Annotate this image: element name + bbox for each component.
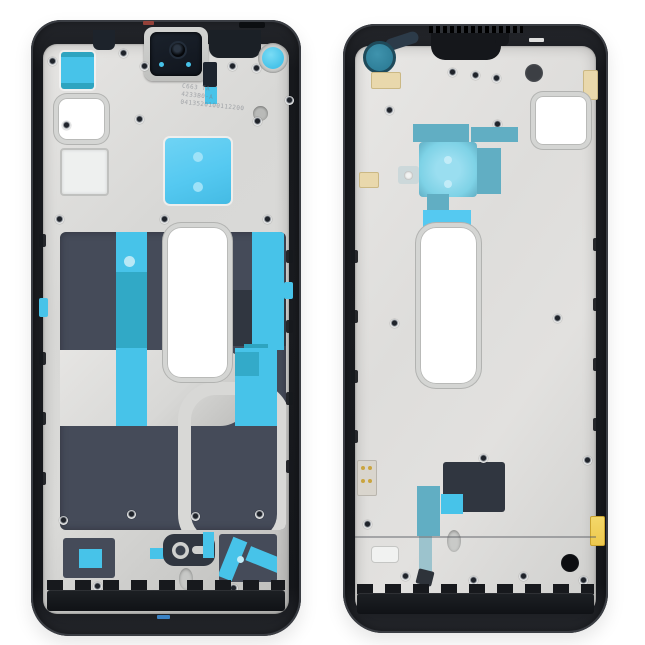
screw-hole — [285, 96, 294, 105]
speaker-patch — [63, 538, 115, 578]
top-right-cutout — [535, 96, 587, 145]
edge-tab — [39, 352, 46, 365]
adhesive-dot-2 — [193, 182, 203, 192]
camera-dot-left — [159, 62, 164, 67]
adhesive-bar-right — [471, 127, 518, 142]
screw-hole — [553, 314, 562, 323]
contact-dot — [361, 466, 365, 470]
screw-hole — [135, 115, 144, 124]
edge-adhesive-left — [39, 298, 48, 317]
screw-hole — [385, 106, 394, 115]
bottom-blue-dash — [157, 615, 170, 619]
front-camera-ring — [258, 43, 288, 73]
camera-lens — [169, 41, 187, 59]
adhesive-arm-right — [477, 148, 501, 194]
edge-tab — [593, 298, 600, 311]
right-midframe — [343, 24, 608, 633]
top-speaker-slot — [239, 22, 265, 28]
top-white-dash — [529, 38, 544, 42]
gold-contact-right — [590, 516, 605, 546]
edge-tab — [351, 370, 358, 383]
screw-hole — [253, 117, 262, 126]
screw-hole — [59, 516, 68, 525]
screw-hole — [479, 454, 488, 463]
camera-dot-right — [186, 62, 191, 67]
front-camera-sticker — [262, 47, 284, 69]
camera-module — [150, 32, 202, 76]
bracket-seam — [355, 536, 596, 538]
edge-tab — [593, 358, 600, 371]
edge-tab — [286, 320, 293, 333]
edge-tab — [39, 412, 46, 425]
edge-tab — [351, 310, 358, 323]
housing-serration — [429, 26, 523, 33]
product-photo-two-phone-midframes: C663 TA 4233B0-A 0413520100112200 — [0, 0, 645, 645]
adhesive-tab-left — [398, 166, 419, 184]
speaker-adhesive — [79, 549, 102, 568]
top-left-cutout — [58, 98, 105, 140]
screw-hole — [62, 121, 71, 130]
adhesive-bar-left — [413, 124, 469, 142]
edge-tab — [39, 234, 46, 247]
screw-hole — [583, 456, 592, 465]
lcd-adhesive-square — [165, 138, 231, 204]
bottom-dark-patch — [219, 534, 277, 582]
contact-dot — [368, 479, 372, 483]
edge-tab — [286, 250, 293, 263]
edge-tab — [286, 460, 293, 473]
bottom-adhesive-vertical — [203, 532, 214, 558]
adhesive-dot-1 — [444, 156, 452, 164]
screw-hole — [228, 62, 237, 71]
adhesive-strip-right-upper — [252, 232, 284, 350]
screw-hole — [252, 64, 261, 73]
screw-hole — [160, 215, 169, 224]
screw-hole — [48, 57, 57, 66]
contact-dot — [361, 479, 365, 483]
adhesive-strip-right-lower-overlay — [235, 352, 259, 376]
oval-hole — [447, 530, 461, 552]
edge-tab — [39, 472, 46, 485]
screw-hole — [263, 215, 272, 224]
raised-square — [60, 148, 109, 196]
bottom-comb-bar — [357, 593, 594, 614]
screw-hole — [401, 572, 410, 581]
adhesive-square — [419, 142, 477, 197]
display-flex-cutout — [420, 227, 477, 384]
earpiece-sticker — [61, 52, 94, 89]
plate-hole-dark — [525, 64, 543, 82]
screw-hole — [119, 49, 128, 58]
sensor-housing — [209, 30, 261, 58]
edge-tab — [351, 250, 358, 263]
edge-tab — [593, 418, 600, 431]
strip-hole — [124, 256, 135, 267]
screw-hole — [255, 510, 264, 519]
patch-dot — [237, 556, 244, 563]
red-qc-mark — [143, 21, 154, 25]
screw-hole — [390, 319, 399, 328]
screw-hole — [140, 62, 149, 71]
bottom-comb-bar — [47, 590, 285, 611]
screw-hole — [127, 510, 136, 519]
screw-hole — [471, 71, 480, 80]
screw-hole — [363, 520, 372, 529]
tab-hole — [404, 171, 413, 180]
bottom-comb-teeth — [47, 580, 285, 590]
adhesive-dot-2 — [444, 180, 452, 188]
proximity-tab — [203, 62, 217, 87]
adhesive-strip-lower — [417, 486, 440, 536]
edge-tab — [351, 430, 358, 443]
punch-hole-sticker — [363, 41, 396, 74]
keyhole-circle — [172, 542, 189, 559]
contact-dot — [368, 466, 372, 470]
edge-tab — [593, 238, 600, 251]
screw-hole — [55, 215, 64, 224]
bottom-black-hole — [561, 554, 579, 572]
patch-adhesive-2 — [245, 546, 277, 573]
edge-adhesive-right — [284, 282, 293, 299]
cream-sticker-right — [583, 70, 598, 100]
screw-hole — [448, 68, 457, 77]
adhesive-dot-1 — [193, 152, 203, 162]
cream-sticker-left — [371, 72, 401, 89]
display-flex-cutout — [167, 227, 228, 378]
bottom-white-pill — [371, 546, 399, 563]
screw-hole — [191, 512, 200, 521]
edge-tab — [286, 392, 293, 405]
left-midframe: C663 TA 4233B0-A 0413520100112200 — [31, 20, 301, 636]
adhesive-strip-left-overlay — [116, 272, 147, 348]
screw-hole — [492, 74, 501, 83]
flash-housing — [93, 30, 115, 50]
screw-hole — [519, 572, 528, 581]
cream-sticker-left-2 — [359, 172, 379, 188]
contact-sticker-left — [357, 460, 377, 496]
patch-adhesive-notch — [441, 494, 463, 514]
